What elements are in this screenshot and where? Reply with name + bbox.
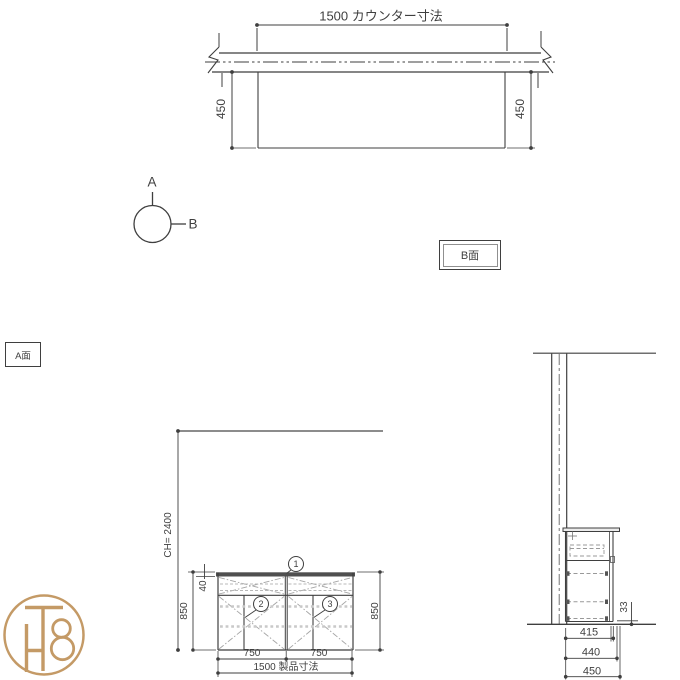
technical-drawing-svg [0, 0, 680, 680]
balloon-1: 1 [288, 556, 304, 572]
plan-counter-dim-label: 1500 カウンター寸法 [319, 10, 443, 23]
balloon-2: 2 [253, 596, 269, 612]
side-depth-415-label: 415 [580, 628, 598, 639]
a-face-label: A面 [15, 348, 31, 362]
ceiling-height-label: CH= 2400 [164, 512, 174, 557]
drawing-canvas: 1500 カウンター寸法 450 450 A B B面 A面 CH= 2400 … [0, 0, 680, 680]
plan-depth-right-label: 450 [514, 99, 526, 119]
side-bottom-gap-label: 33 [620, 601, 630, 612]
elevation-height-right-label: 850 [370, 602, 381, 620]
door-width-left-label: 750 [244, 649, 261, 659]
counter-thickness-label: 40 [199, 580, 209, 591]
side-depth-450-label: 450 [583, 666, 601, 677]
b-face-label: B面 [461, 247, 479, 263]
section-marker [134, 192, 186, 243]
product-dim-label: 1500 製品寸法 [253, 663, 318, 673]
section-arrow-a-label: A [147, 175, 156, 189]
side-depth-440-label: 440 [582, 648, 600, 659]
plan-depth-left-label: 450 [215, 99, 227, 119]
plan-view [205, 23, 555, 150]
section-arrow-b-label: B [188, 217, 197, 231]
brand-monogram-icon [5, 596, 84, 675]
door-width-right-label: 750 [311, 649, 328, 659]
b-face-label-box: B面 [439, 240, 501, 270]
elevation-view [176, 429, 384, 677]
a-face-label-box: A面 [5, 342, 41, 367]
balloon-3: 3 [322, 596, 338, 612]
elevation-height-left-label: 850 [179, 602, 190, 620]
